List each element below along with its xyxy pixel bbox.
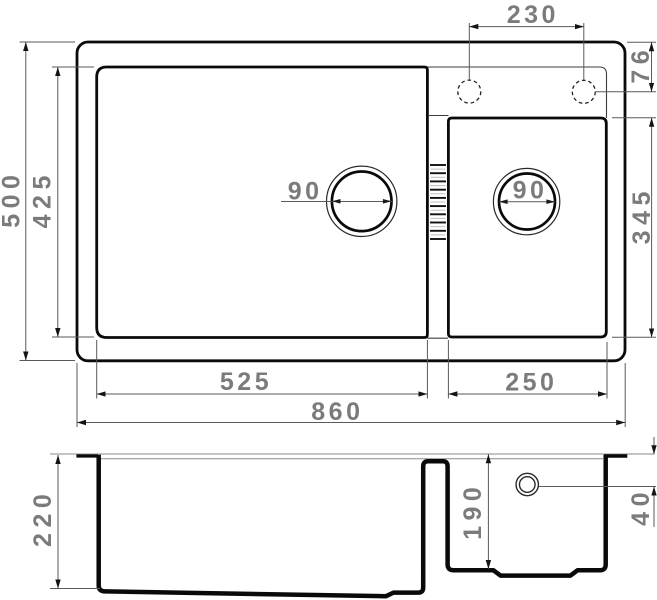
svg-text:190: 190 — [459, 482, 487, 540]
svg-text:90: 90 — [288, 177, 323, 205]
svg-text:40: 40 — [627, 487, 655, 526]
svg-text:500: 500 — [0, 170, 26, 228]
svg-text:525: 525 — [220, 368, 272, 396]
svg-text:90: 90 — [513, 177, 548, 205]
svg-text:76: 76 — [627, 45, 655, 84]
svg-text:220: 220 — [29, 489, 57, 547]
svg-text:230: 230 — [507, 1, 559, 29]
svg-text:425: 425 — [29, 170, 57, 228]
svg-text:860: 860 — [311, 398, 363, 426]
svg-text:250: 250 — [505, 368, 557, 396]
svg-text:345: 345 — [628, 186, 656, 244]
